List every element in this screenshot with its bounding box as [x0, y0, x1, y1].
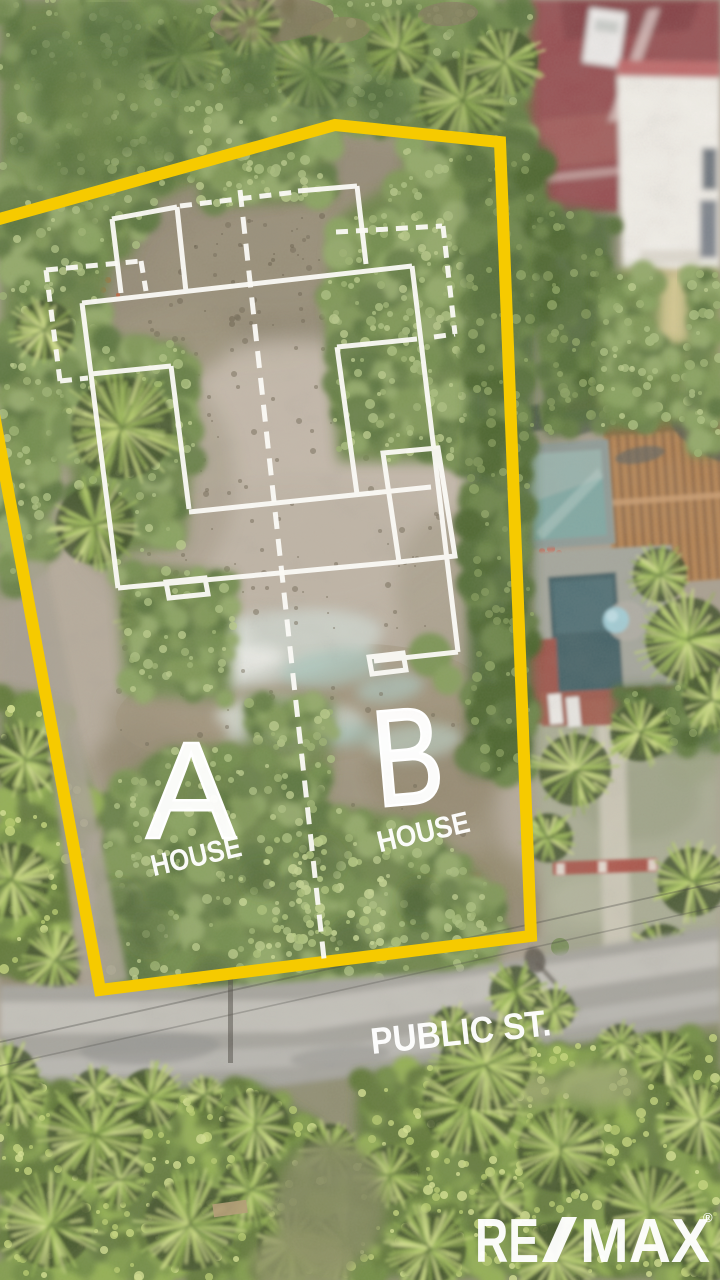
svg-text:®: ®: [703, 1210, 713, 1225]
svg-text:RE: RE: [475, 1207, 539, 1276]
svg-text:MAX: MAX: [580, 1207, 710, 1276]
